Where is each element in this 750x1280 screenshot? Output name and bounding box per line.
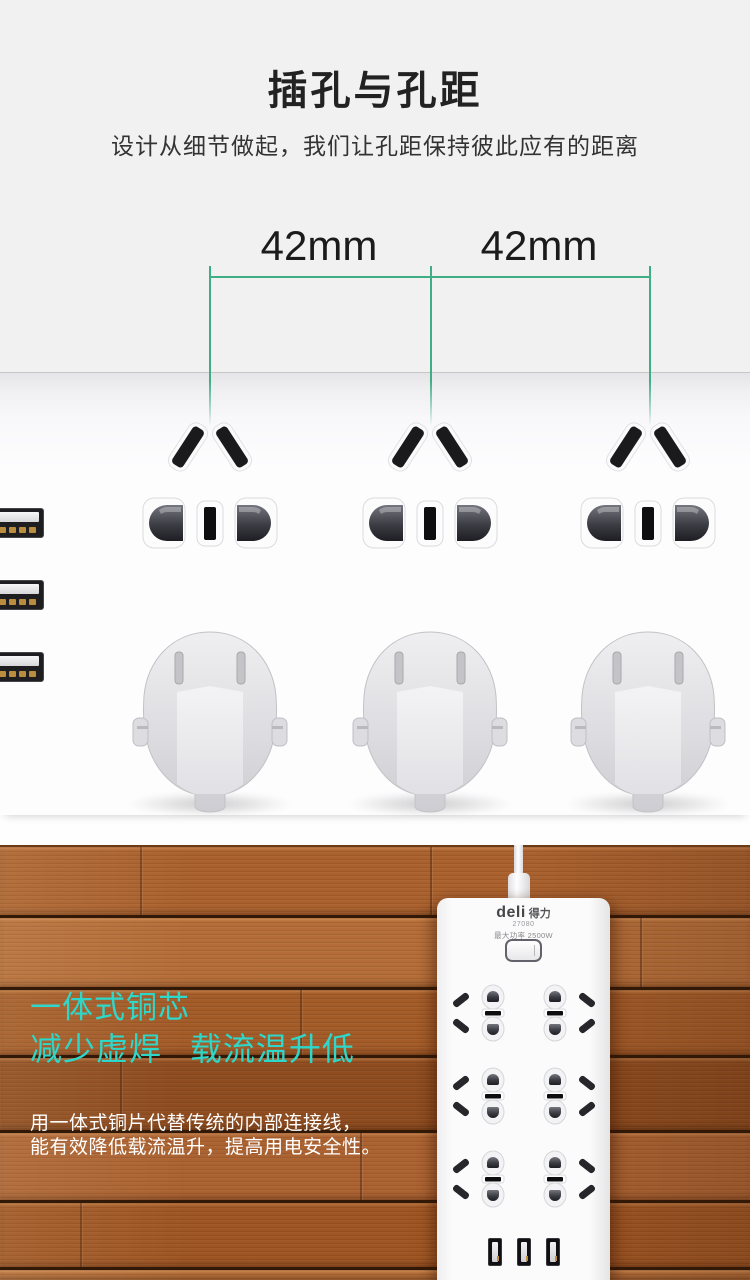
socket-row xyxy=(437,1067,610,1125)
usb-port-icon xyxy=(517,1238,531,1266)
usb-tongue xyxy=(0,584,39,594)
power-cable xyxy=(514,845,523,876)
copper-body-line2: 能有效降低载流温升，提高用电安全性。 xyxy=(30,1136,381,1159)
usb-contacts xyxy=(0,671,36,677)
usb-port-icon xyxy=(488,1238,502,1266)
dimension-label-left: 42mm xyxy=(254,222,384,270)
copper-headline-line1: 一体式铜芯 xyxy=(30,982,190,1027)
brand-logo-chinese: 得力 xyxy=(529,905,551,921)
usb-port-icon xyxy=(546,1238,560,1266)
wood-plank xyxy=(0,1267,750,1280)
usb-port-icon xyxy=(0,580,44,610)
usb-tongue xyxy=(0,512,39,522)
brand-logo-latin: deli xyxy=(496,904,526,922)
five-hole-socket-icon xyxy=(449,1150,513,1208)
brand-logo: deli 得力 xyxy=(437,904,610,922)
copper-headline-line2: 减少虚焊 载流温升低 xyxy=(30,1024,355,1070)
wood-plank xyxy=(0,915,750,987)
five-hole-socket-icon xyxy=(449,1067,513,1125)
wood-plank xyxy=(0,845,750,915)
switch-row xyxy=(437,939,610,962)
power-plug-icon xyxy=(563,626,733,821)
dimension-label-right: 42mm xyxy=(474,222,604,270)
five-hole-socket-icon xyxy=(449,984,513,1042)
usb-port-icon xyxy=(0,652,44,682)
five-hole-socket-icon xyxy=(125,402,295,567)
copper-body-line1: 用一体式铜片代替传统的内部连接线， xyxy=(30,1112,362,1135)
five-hole-socket-icon xyxy=(535,1150,599,1208)
usb-contacts xyxy=(0,599,36,605)
socket-row xyxy=(437,1150,610,1208)
usb-port-icon xyxy=(0,508,44,538)
wood-plank xyxy=(0,1200,750,1267)
five-hole-socket-icon xyxy=(535,1067,599,1125)
power-plug-icon xyxy=(125,626,295,821)
model-number: 27080 xyxy=(437,921,610,928)
five-hole-socket-icon xyxy=(535,984,599,1042)
dimension-annotation: 42mm 42mm xyxy=(0,0,750,450)
usb-contacts xyxy=(0,527,36,533)
power-plug-icon xyxy=(345,626,515,821)
socket-spacing-section: 插孔与孔距 设计从细节做起，我们让孔距保持彼此应有的距离 42mm 42mm xyxy=(0,0,750,845)
usb-row xyxy=(437,1238,610,1266)
five-hole-socket-icon xyxy=(345,402,515,567)
socket-row xyxy=(437,984,610,1042)
five-hole-socket-icon xyxy=(563,402,733,567)
product-detail-image: 插孔与孔距 设计从细节做起，我们让孔距保持彼此应有的距离 42mm 42mm xyxy=(0,0,750,1280)
power-switch xyxy=(505,939,542,962)
usb-tongue xyxy=(0,656,39,666)
power-strip-product: deli 得力 27080 最大功率 2500W xyxy=(437,898,610,1280)
